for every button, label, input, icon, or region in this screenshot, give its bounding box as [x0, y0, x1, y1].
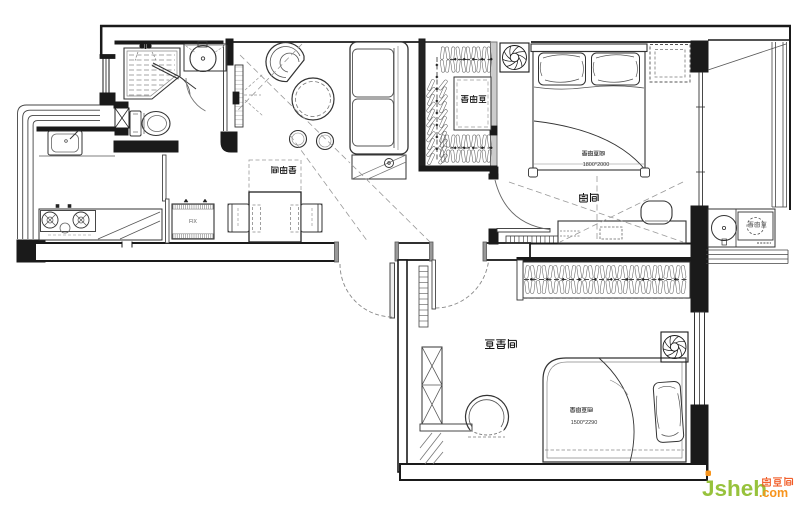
svg-text:Jsheh: Jsheh [702, 476, 767, 500]
svg-text:1500*2290: 1500*2290 [571, 420, 598, 426]
svg-text:FIX: FIX [189, 219, 197, 225]
svg-text:.com: .com [759, 486, 788, 500]
svg-text:1800*2000: 1800*2000 [583, 162, 610, 168]
